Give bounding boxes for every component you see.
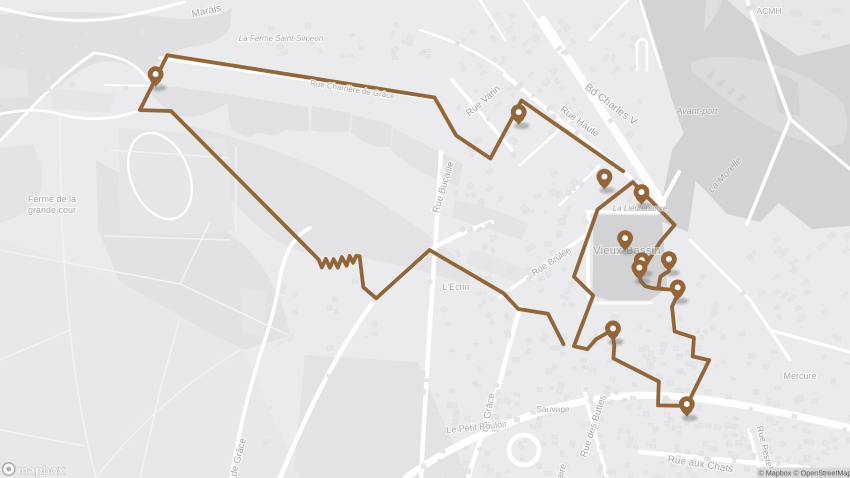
svg-text:L'Ecrin: L'Ecrin	[442, 282, 469, 292]
svg-text:mapbox: mapbox	[18, 464, 65, 478]
svg-text:grande cour: grande cour	[28, 205, 76, 215]
svg-text:Ferme de la: Ferme de la	[28, 194, 76, 204]
svg-text:Avant-port: Avant-port	[675, 106, 718, 116]
svg-text:© Mapbox © OpenStreetMap: © Mapbox © OpenStreetMap	[759, 469, 850, 478]
svg-text:Mercure: Mercure	[783, 371, 816, 381]
svg-text:Sauvage: Sauvage	[536, 404, 570, 414]
svg-text:La Ferme Saint-Simeon: La Ferme Saint-Simeon	[239, 34, 324, 43]
svg-text:ACMH: ACMH	[756, 6, 781, 16]
